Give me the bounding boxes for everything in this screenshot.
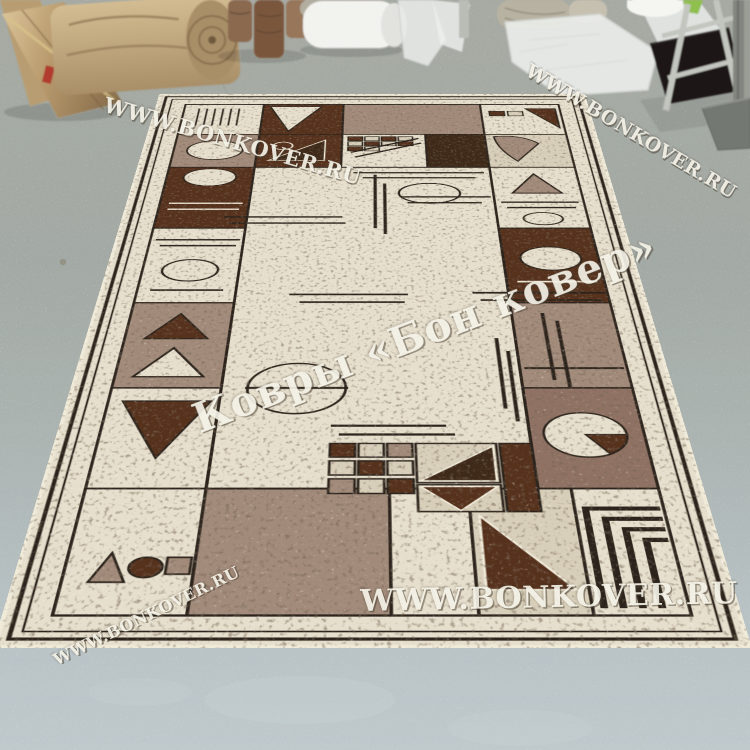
showroom-photo: WWW.BONKOVER.RU WWW.BONKOVER.RU Ковры «Б… [0,0,750,750]
